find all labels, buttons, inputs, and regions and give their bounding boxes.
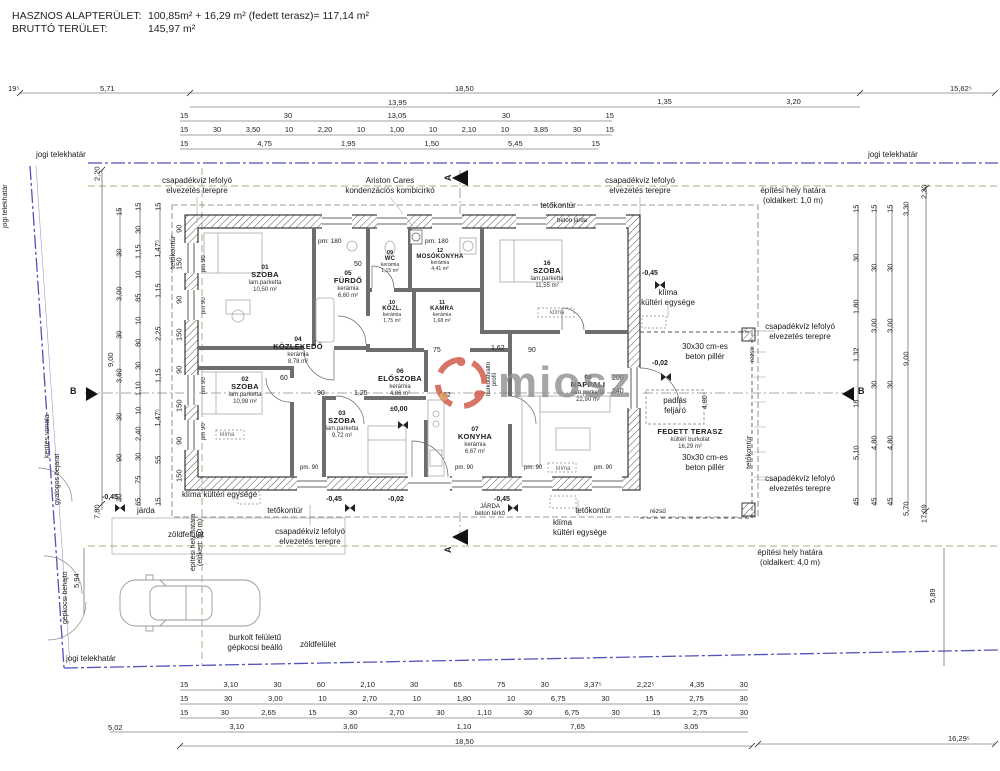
dim-value: 3,00 [268,695,283,703]
dim-value: 30 [524,709,532,717]
dim-value: 2,10 [360,681,375,689]
dim-value: 3,00 [115,286,123,301]
room-area: 4,86 m² [378,391,422,398]
dim-value: 30 [573,126,581,134]
note-building-limit-side-4: építési hely határa (oldalkert: 4,0 m) [757,548,822,567]
dim-col-right-5: 2,2017,09 [917,188,931,517]
dim-value: 3,85 [534,126,549,134]
dim-door-240: 240 [612,388,624,395]
note-legal-boundary-left: jogi telekhatár [2,168,9,244]
note-slope-right: rézsű [750,340,756,370]
dim-value: 15 [652,709,660,717]
dim-value: 150 [175,399,183,412]
dim-value: 10 [134,407,142,415]
dim-value: 1,15 [154,368,162,383]
room-area: 10,98 m² [228,399,261,406]
dim-value: 30 [601,695,609,703]
note-window-pm90-b4: pm. 90 [594,465,612,472]
dim-value: 1,15 [154,284,162,299]
room-material: lam.parketta [530,276,563,283]
room-area: 16,29 m² [657,444,722,451]
dim-value: 30 [134,362,142,370]
note-rainwater-bottom: csapadékvíz lefolyó elvezetés terepre [275,527,345,546]
dim-value: 30 [115,249,123,257]
dim-inner-62: 62 [443,392,451,399]
dim-value: 15 [308,709,316,717]
note-concrete-pillar-bottom: 30x30 cm-es beton pillér [682,453,728,472]
room-name: KONYHA [458,433,492,442]
room-label-kamra-11: 11 KAMRA kerámia 1,68 m² [430,300,454,325]
dim-door-200: 200 [612,375,624,382]
dim-value: 3,37⁵ [584,681,602,689]
dim-row-bottom-b: 15303,00102,70101,80106,7530152,7530 [180,695,748,703]
dim-value: 1,47⁵ [154,240,162,258]
dim-value: 2,20 [93,166,101,181]
dim-value: 30 [224,695,232,703]
note-legal-boundary-top-left: jogi telekhatár [36,150,86,160]
room-name: NAPPALI [571,381,605,390]
room-label-szoba-03: 03 SZOBA lam.parketta 9,72 m² [325,410,358,440]
dim-value: 45 [870,497,878,505]
dim-value: 3,60 [115,368,123,383]
dim-value: 1,10 [477,709,492,717]
dim-value: 75 [497,681,505,689]
dim-value: 4,80 [870,435,878,450]
room-area: 10,50 m² [248,287,281,294]
dim-value: 30 [410,681,418,689]
note-klima-outdoor-right: klíma kültéri egysége [641,288,695,307]
level-minus045-right: -0,45 [642,270,658,278]
header-gross-area-value: 145,97 m² [148,23,195,36]
dim-terrace-480: 4,80 [702,386,709,418]
dim-value: 30 [740,695,748,703]
note-window-pm90-b2: pm. 90 [455,465,473,472]
dim-col-left-2: 15303,00303,60309030 [112,208,126,502]
room-area: 4,41 m² [416,267,463,273]
dim-value: 3,00 [886,318,894,333]
dim-value: 7,80 [93,504,101,519]
room-label-szoba-01: 01 SZOBA lam.parketta 10,50 m² [248,264,281,294]
dim-value: 2,75 [693,709,708,717]
room-label-fedett-terasz: FEDETT TERASZ kültéri burkolat 16,29 m² [657,428,722,450]
room-area: 8,78 m² [273,359,323,366]
dim-row-bottom-d: 3,103,601,107,653,05 [180,723,748,731]
dim-value: 1,80 [852,299,860,314]
dim-top: 15,62⁵ [950,84,972,93]
room-material: lam.parketta [325,426,358,433]
level-minus002-entry: -0,02 [388,496,404,504]
dim-value: 90 [175,295,183,303]
note-concrete-walkway-top: beton járda [557,218,587,225]
note-window-pm90-l1: pm 90 [201,250,207,278]
dim-value: 15 [180,126,188,134]
note-walkway-left: járda [137,506,155,516]
dim-value: 15 [180,709,188,717]
dim-value: 10 [318,695,326,703]
dim-row-top-b: 1,353,20 [600,98,858,106]
section-marker-a-bottom: A [443,540,453,560]
dim-value: 7,65 [570,723,585,731]
room-label-kozlekedo-04: 04 KÖZLEKEDŐ kerámia 8,78 m² [273,336,323,366]
dim-value: 10 [413,695,421,703]
dim-value: 80 [134,339,142,347]
dim-value: 30 [886,263,894,271]
note-concrete-pillar-top: 30x30 cm-es beton pillér [682,342,728,361]
dim-value: 2,75 [689,695,704,703]
dim-value: 45 [886,497,894,505]
room-area: 1,15 m² [381,269,399,275]
dim-value: 4,80 [886,435,894,450]
dim-value: 15 [180,695,188,703]
dim-value: 30 [213,126,221,134]
room-material: lam.parketta [228,392,261,399]
dim-value: 1,00 [390,126,405,134]
dim-row-top-d: 15303,50102,20101,00102,10103,853015 [180,126,614,134]
dim-value: 2,22⁵ [637,681,655,689]
dim-right-589: 5,89 [928,575,937,617]
dim-col-right-2: 15303,00304,8045 [867,205,881,505]
dim-value: 15 [606,126,614,134]
section-marker-b-right: B [858,386,865,396]
note-ariston-boiler: Ariston Cares kondenzációs kombicirkó [345,176,434,195]
dim-col-left-3: 15301,1510851080301,10102,40307565 [131,203,145,506]
dim-value: 15 [870,205,878,213]
note-fence-line: kerítés vonala [44,402,51,470]
dim-value: 1,10 [134,381,142,396]
dim-value: 2,70 [389,709,404,717]
dim-value: 30 [870,380,878,388]
dim-value: 65 [454,681,462,689]
note-window-pm90-b1: pm. 90 [300,465,318,472]
dim-value: 30 [541,681,549,689]
dim-value: 2,25 [154,326,162,341]
dim-value: 2,65 [261,709,276,717]
room-name: SZOBA [248,271,281,280]
room-material: lam.parketta [248,280,281,287]
note-window-pm180-1: pm: 180 [318,238,342,246]
dim-value: 1,95 [341,140,356,148]
dim-value: 75 [134,475,142,483]
dim-value: 13,05 [388,112,407,120]
dim-value: 9,00 [902,351,910,366]
dim-value: 90 [115,453,123,461]
dim-bottom: 18,50 [455,737,474,746]
dim-value: 10 [501,126,509,134]
note-klima-small-2: klíma [220,432,234,439]
dim-value: 15 [154,498,162,506]
dim-value: 3,60 [343,723,358,731]
dim-value: 15 [180,112,188,120]
note-window-pm90-b3: pm. 90 [524,465,542,472]
dim-value: 3,20 [786,98,801,106]
dim-value: 15 [606,112,614,120]
dim-value: 15 [645,695,653,703]
dim-value: 1,15 [134,245,142,260]
room-name: KÖZLEKEDŐ [273,343,323,352]
dim-value: 30 [886,380,894,388]
dim-value: 60 [317,681,325,689]
windows [184,214,641,491]
room-name: FÜRDŐ [334,277,362,286]
note-roof-contour-terrace: tetőkontúr [744,424,753,480]
dim-value: 3,05 [684,723,699,731]
room-label-mosokonyha-12: 12 MOSÓKONYHA kerámia 4,41 m² [416,248,463,273]
car [120,575,260,631]
note-vehicle-gate: gépkocsi behajtó [62,562,69,634]
dim-inner-162: 1,62 [491,345,505,352]
dim-col-left-1: 2,207,80 [90,170,104,515]
dim-value: 10 [134,271,142,279]
dim-value: 3,10 [224,681,239,689]
room-area: 6,60 m² [334,293,362,300]
dim-value: 30 [221,709,229,717]
dim-value: 3,00 [870,318,878,333]
dim-value: 2,70 [362,695,377,703]
dim-inner-60: 60 [280,375,288,382]
dim-top: 13,95 [388,98,407,107]
note-building-limit-side-1: építési hely határa (oldalkert: 1,0 m) [760,186,825,205]
room-label-szoba-16: 16 SZOBA lam.parketta 11,55 m² [530,260,563,290]
dim-value: 3,30 [902,201,910,216]
dim-top: 19⁵ [8,84,19,93]
room-label-nappali-08: 08 NAPPALI lam.parketta 22,90 m² [571,374,605,404]
dim-value: 15 [115,208,123,216]
dim-inner-75: 75 [433,347,441,354]
room-name: SZOBA [325,417,358,426]
section-marker-a-top: A [443,168,453,188]
note-green-area-1: zöldfelület [168,530,204,540]
header-useful-area-value: 100,85m² + 16,29 m² (fedett terasz)= 117… [148,10,369,23]
level-minus045-bottom2: -0,45 [494,496,510,504]
dim-value: 6,75 [551,695,566,703]
dim-value: 30 [115,330,123,338]
dim-value: 5,45 [508,140,523,148]
room-label-eloszoba-06: 06 ELŐSZOBA kerámia 4,86 m² [378,368,422,398]
header-useful-area-label: HASZNOS ALAPTERÜLET: [12,10,142,23]
note-legal-boundary-top-right: jogi telekhatár [868,150,918,160]
note-window-pm90-l2: pm 90 [201,292,207,320]
room-area: 6,67 m² [458,449,492,456]
header-gross-area-label: BRUTTÓ TERÜLET: [12,23,107,36]
dim-value: 30 [611,709,619,717]
note-roof-contour-top: tetőkontúr [540,201,576,211]
note-window-pm90-l4: pm 90 [201,418,207,446]
dim-value: 30 [349,709,357,717]
dim-value: 10 [134,316,142,324]
note-klima-small-1: klíma [556,466,570,473]
room-material: kültéri burkolat [657,437,722,444]
level-minus045-left: -0,45 [102,494,118,502]
dim-value: 1,10 [457,723,472,731]
dim-value: 15 [852,205,860,213]
dim-bottom: 16,29⁵ [948,734,970,743]
note-klima-small-3: klíma [550,310,564,317]
dim-bottom: 5,02 [108,723,123,732]
dim-value: 10 [285,126,293,134]
dim-value: 4,75 [257,140,272,148]
room-material: kerámia [334,286,362,293]
dim-value: 15 [180,681,188,689]
dim-inner-90a: 90 [528,347,536,354]
exterior-walls [185,215,640,490]
room-area: 1,75 m² [382,319,402,325]
dim-value: 2,20 [920,184,928,199]
note-roof-contour-bottom-left: tetőkontúr [267,506,303,516]
room-name: SZOBA [228,383,261,392]
dim-value: 3,10 [229,723,244,731]
dim-value: 90 [175,366,183,374]
dim-value: 15 [134,203,142,211]
dim-top: 18,50 [455,84,474,93]
room-material: kerámia [273,352,323,359]
dim-value: 15 [180,140,188,148]
note-walkway-pavers: JÁRDA beton térkő [475,504,505,518]
dim-value: 45 [852,497,860,505]
dim-top: 5,71 [100,84,115,93]
note-rainwater-right-lower: csapadékvíz lefolyó elvezetés terepre [765,474,835,493]
dim-value: 30 [134,225,142,233]
dim-value: 85 [134,293,142,301]
dim-value: 5,70 [902,501,910,516]
dim-row-bottom-a: 153,1030602,10306575303,37⁵2,22⁵4,3530 [180,681,748,689]
room-area: 22,90 m² [571,397,605,404]
dim-value: 1,50 [424,140,439,148]
note-klima-outdoor-left: klíma kültéri egysége [182,490,257,500]
note-rainwater-top-right: csapadékvíz lefolyó elvezetés terepre [605,176,675,195]
room-label-furdo-05: 05 FÜRDŐ kerámia 6,60 m² [334,270,362,300]
note-green-area-2: zöldfelület [300,640,336,650]
dim-value: 2,10 [462,126,477,134]
level-minus002-terrace: -0,02 [652,360,668,368]
dim-value: 30 [740,709,748,717]
dim-value: 30 [870,263,878,271]
dim-value: 4,35 [690,681,705,689]
dim-value: 30 [115,412,123,420]
note-roof-contour-left: tetőkontúr [168,226,177,278]
dim-value: 1,47⁵ [154,409,162,427]
dim-value: 1,35 [657,98,672,106]
room-label-szoba-02: 02 SZOBA lam.parketta 10,98 m² [228,376,261,406]
room-material: kerámia [378,384,422,391]
note-rainwater-top-left: csapadékvíz lefolyó elvezetés terepre [162,176,232,195]
dim-value: 30 [284,112,292,120]
room-label-wc-09: 09 WC kerámia 1,15 m² [381,250,399,275]
dim-col-left-4: 151,47⁵1,152,251,151,47⁵5515 [151,203,165,506]
note-roof-contour-bottom-right: tetőkontúr [575,506,611,516]
room-label-kozl-10: 10 KÖZL. kerámia 1,75 m² [382,300,402,325]
dim-row-top-c: 153013,053015 [180,112,614,120]
dim-value: 18 [852,400,860,408]
room-area: 11,55 m² [530,283,563,290]
note-window-pm180-2: pm: 180 [425,238,449,246]
dim-value: 15 [886,205,894,213]
dim-value: 65 [134,498,142,506]
dim-value: 150 [175,470,183,483]
dim-value: 10 [507,695,515,703]
dim-value: 2,40 [134,427,142,442]
room-name: ELŐSZOBA [378,375,422,384]
room-area: 1,68 m² [430,319,454,325]
section-marker-b-left: B [70,386,77,396]
note-flooring-transition: burkolatváltó profil [486,348,498,410]
dim-value: 30 [852,253,860,261]
dim-value: 15 [592,140,600,148]
room-material: lam.parketta [571,390,605,397]
boiler [410,230,422,244]
dim-inner-125: 1,25 [354,390,368,397]
note-pedestrian-gate: gyalogos bejárat [54,444,61,514]
dim-left-594: 5,94 [72,560,81,602]
dim-value: 1,32 [852,348,860,363]
dim-col-right-4: 3,309,005,70 [899,205,913,512]
room-name: FEDETT TERASZ [657,428,722,437]
note-window-pm90-l3: pm 90 [201,372,207,400]
dim-col-right-3: 15303,00304,8045 [883,205,897,505]
level-zero: ±0,00 [390,406,407,414]
dim-value: 5,10 [852,445,860,460]
dim-col-right-1: 15301,801,32185,1045 [849,205,863,505]
note-slope-bottom: rézsű [650,508,666,516]
dim-value: 1,80 [457,695,472,703]
dim-row-bottom-c: 15302,6515302,70301,10306,7530152,7530 [180,709,748,717]
dim-value: 3,50 [246,126,261,134]
room-name: SZOBA [530,267,563,276]
room-material: kerámia [458,442,492,449]
dim-value: 15 [154,203,162,211]
dim-value: 90 [175,437,183,445]
dim-value: 10 [429,126,437,134]
note-attic-access: padlás feljáró [663,396,687,415]
note-paved-parking: burkolt felületű gépkocsi beálló [227,633,282,652]
dim-value: 30 [740,681,748,689]
dim-value: 30 [436,709,444,717]
note-klima-outdoor-center: klíma kültéri egysége [553,518,607,537]
dim-value: 2,20 [318,126,333,134]
note-rainwater-right-upper: csapadékvíz lefolyó elvezetés terepre [765,322,835,341]
room-label-konyha-07: 07 KONYHA kerámia 6,67 m² [458,426,492,456]
dim-value: 6,75 [565,709,580,717]
level-minus045-bottom1: -0,45 [326,496,342,504]
dim-inner-50: 50 [354,261,362,268]
room-area: 9,72 m² [325,433,358,440]
dim-row-top-e: 154,751,951,505,4515 [180,140,600,148]
dim-value: 30 [273,681,281,689]
note-legal-boundary-bottom: jogi telekhatár [66,654,116,664]
dim-value: 10 [357,126,365,134]
dim-value: 30 [134,452,142,460]
floor-plan-page: HASZNOS ALAPTERÜLET: 100,85m² + 16,29 m²… [0,0,1000,771]
note-building-limit-front-5: építési hely határa (előkert: 5,0 m) [190,502,204,582]
dim-inner-90b: 90 [317,390,325,397]
dim-value: 17,09 [920,504,928,523]
dim-value: 55 [154,456,162,464]
dim-value: 150 [175,329,183,342]
dim-value: 30 [502,112,510,120]
